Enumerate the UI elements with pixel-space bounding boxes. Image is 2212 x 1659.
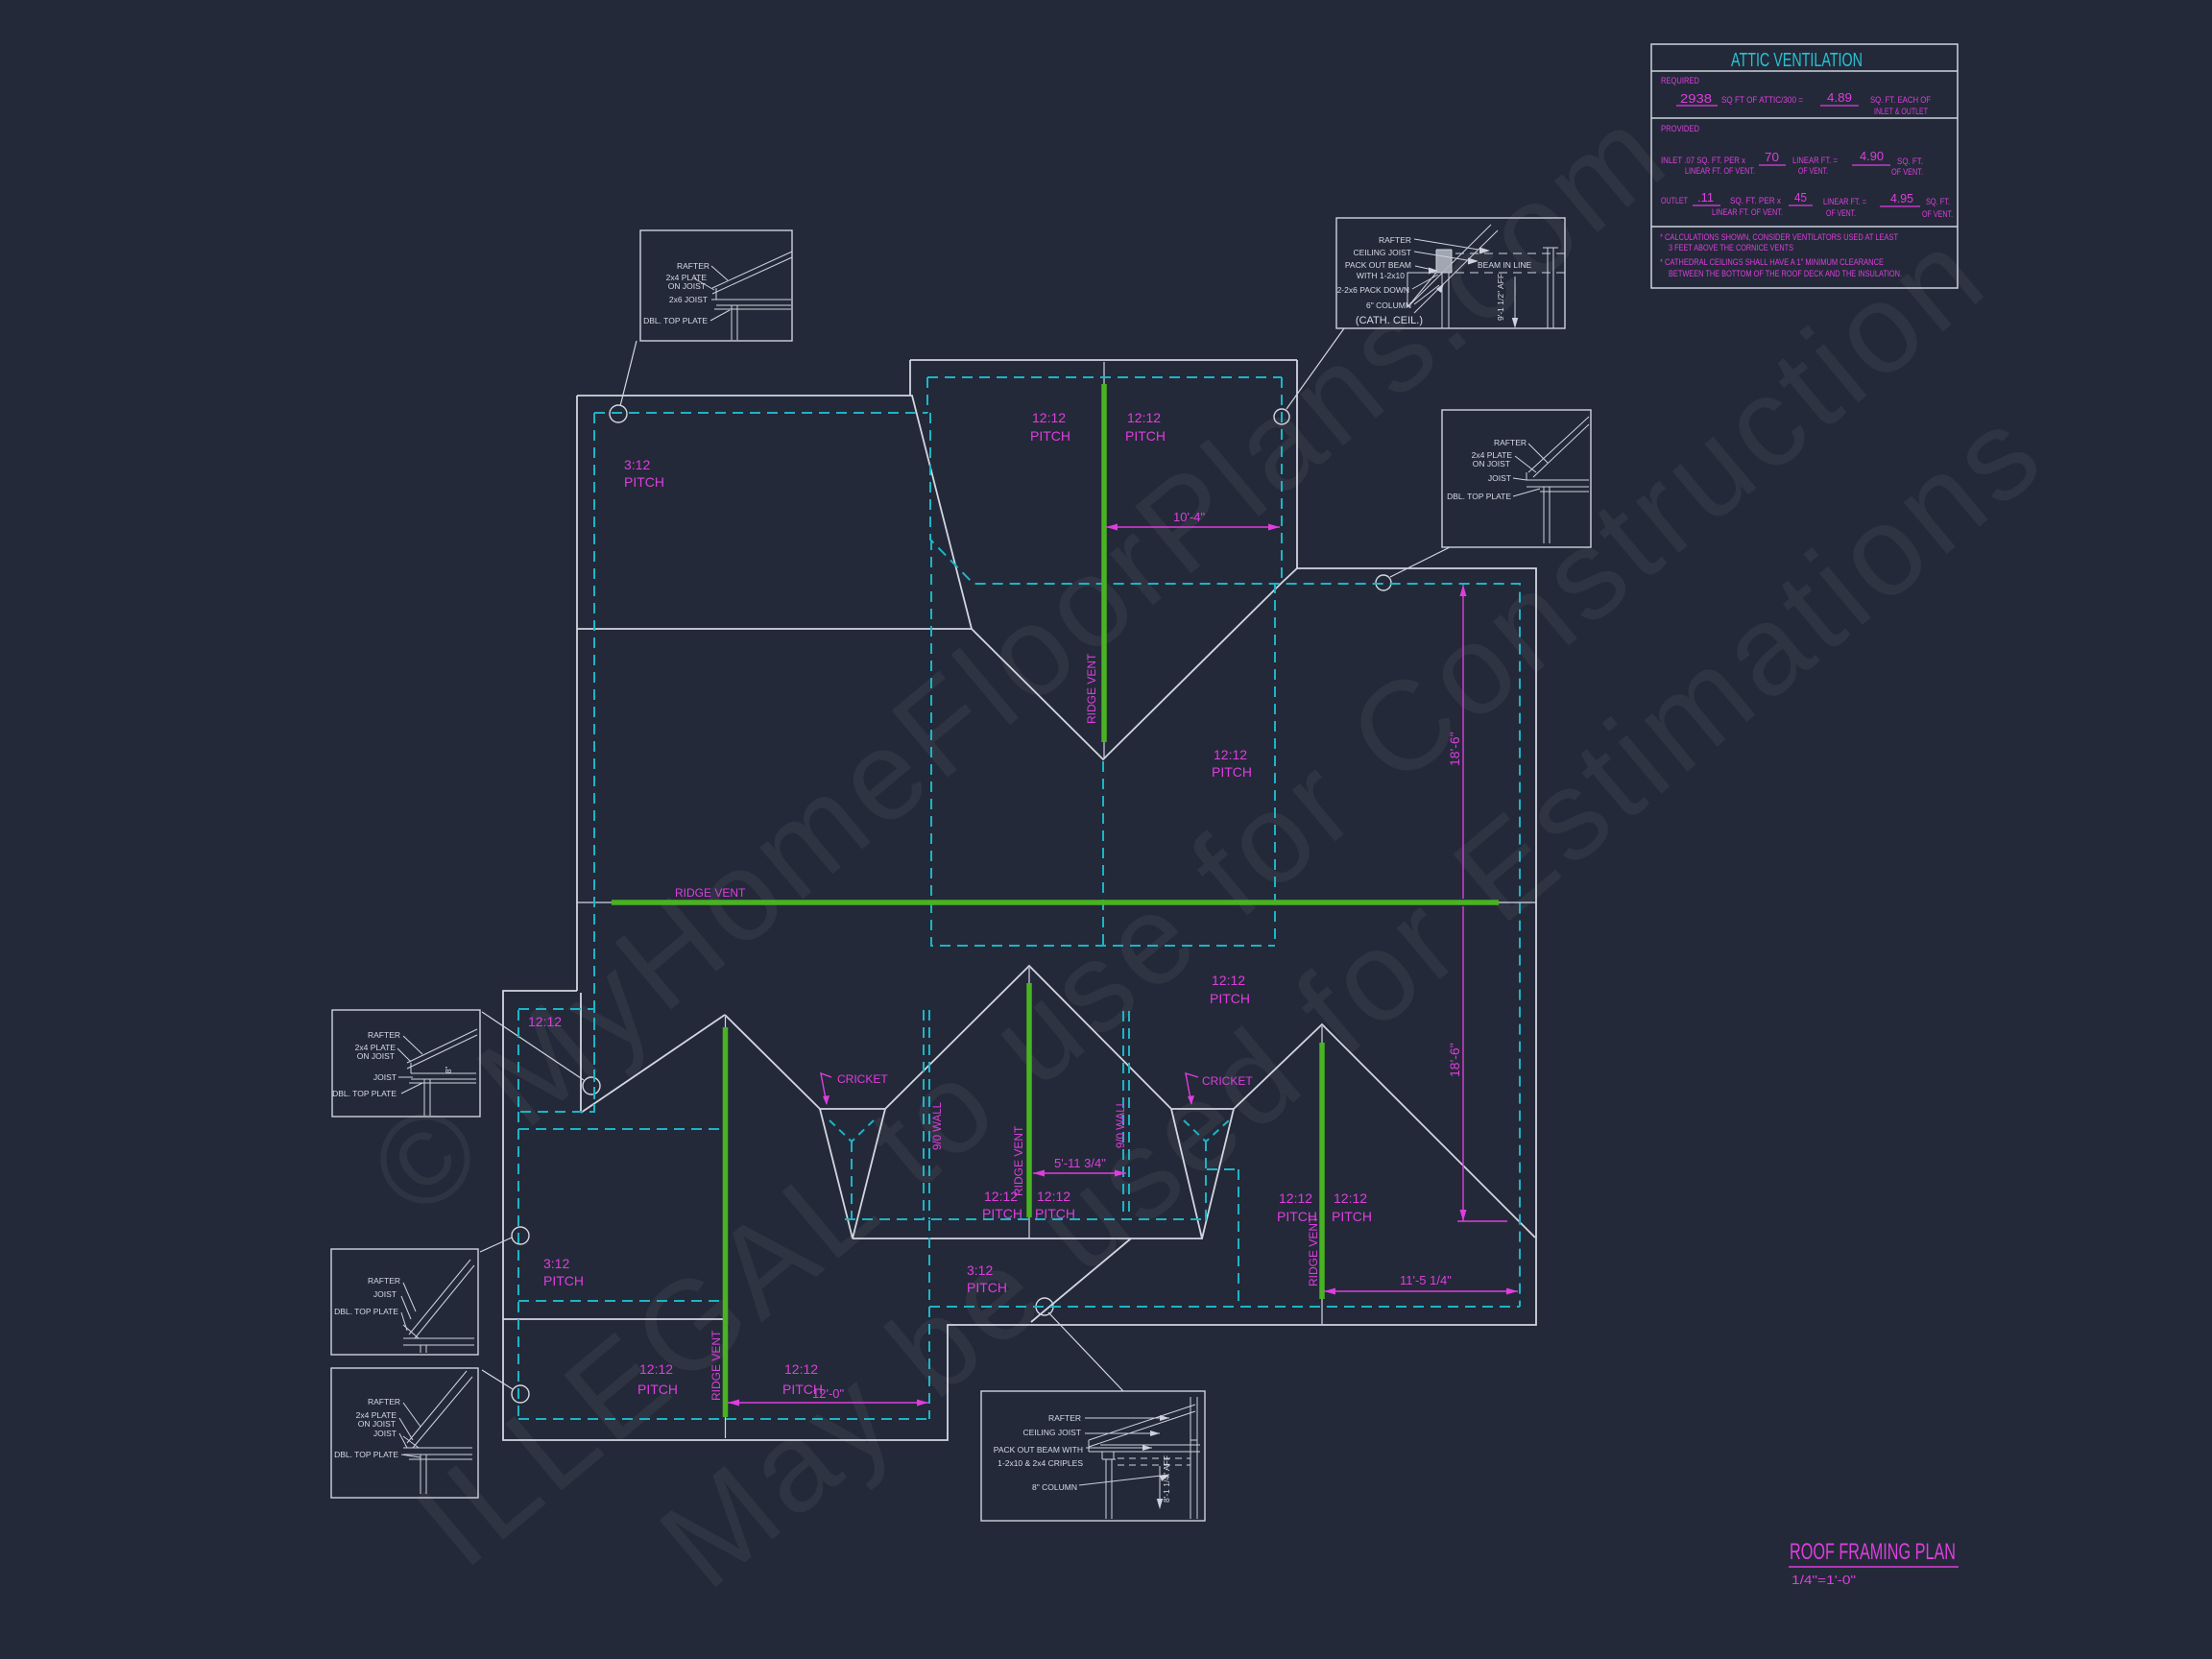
svg-text:(CATH. CEIL.): (CATH. CEIL.) [1356, 315, 1423, 326]
svg-text:PITCH: PITCH [1125, 428, 1166, 444]
svg-text:PITCH: PITCH [1030, 428, 1070, 444]
svg-text:12:12: 12:12 [1334, 1190, 1367, 1206]
svg-text:6" COLUMN: 6" COLUMN [1366, 301, 1411, 310]
svg-text:RAFTER: RAFTER [368, 1397, 400, 1407]
svg-text:12:12: 12:12 [784, 1361, 818, 1377]
svg-text:* CATHEDRAL CEILINGS SHALL HAV: * CATHEDRAL CEILINGS SHALL HAVE A 1" MIN… [1660, 257, 1884, 268]
svg-text:8'-1 1/4" AFF: 8'-1 1/4" AFF [1162, 1455, 1171, 1503]
svg-text:2-2x6 PACK DOWN: 2-2x6 PACK DOWN [1337, 285, 1409, 295]
svg-text:12'-0": 12'-0" [812, 1386, 845, 1401]
svg-text:ON JOIST: ON JOIST [668, 281, 706, 291]
svg-text:11'-5 1/4": 11'-5 1/4" [1400, 1273, 1452, 1287]
svg-text:8" COLUMN: 8" COLUMN [1032, 1482, 1077, 1492]
svg-text:3:12: 3:12 [543, 1256, 569, 1271]
svg-text:LINEAR FT. OF VENT.: LINEAR FT. OF VENT. [1712, 207, 1783, 218]
svg-text:10'-4": 10'-4" [1173, 510, 1206, 524]
svg-text:12:12: 12:12 [1279, 1190, 1312, 1206]
svg-text:RAFTER: RAFTER [368, 1276, 400, 1286]
svg-text:CRICKET: CRICKET [837, 1072, 888, 1086]
svg-text:INLET & OUTLET: INLET & OUTLET [1874, 107, 1928, 117]
svg-text:PITCH: PITCH [1210, 991, 1250, 1006]
svg-text:3:12: 3:12 [624, 457, 650, 472]
svg-text:OF VENT.: OF VENT. [1922, 209, 1953, 220]
svg-text:12:12: 12:12 [639, 1361, 673, 1377]
svg-text:18'-6": 18'-6" [1447, 1043, 1462, 1077]
svg-text:4.89: 4.89 [1827, 91, 1852, 105]
svg-text:BEAM IN LINE: BEAM IN LINE [1478, 260, 1532, 270]
svg-text:DBL. TOP PLATE: DBL. TOP PLATE [643, 316, 708, 325]
svg-text:RIDGE VENT: RIDGE VENT [1307, 1215, 1320, 1286]
svg-text:INLET .07 SQ. FT. PER x: INLET .07 SQ. FT. PER x [1661, 156, 1745, 166]
svg-text:RAFTER: RAFTER [677, 261, 709, 271]
svg-text:DBL. TOP PLATE: DBL. TOP PLATE [1447, 492, 1511, 501]
svg-text:PROVIDED: PROVIDED [1661, 124, 1699, 134]
svg-text:LINEAR FT. =: LINEAR FT. = [1792, 156, 1838, 166]
svg-text:3:12: 3:12 [967, 1262, 993, 1278]
svg-text:WITH 1-2x10: WITH 1-2x10 [1357, 271, 1405, 280]
svg-text:PITCH: PITCH [1212, 764, 1252, 780]
svg-text:PACK OUT BEAM WITH: PACK OUT BEAM WITH [994, 1445, 1083, 1455]
svg-text:PITCH: PITCH [1035, 1206, 1075, 1221]
svg-text:RIDGE VENT: RIDGE VENT [1085, 653, 1098, 724]
svg-text:ON JOIST: ON JOIST [357, 1051, 395, 1061]
svg-text:1/4"=1'-0": 1/4"=1'-0" [1791, 1573, 1856, 1587]
svg-text:5'-11 3/4": 5'-11 3/4" [1054, 1156, 1106, 1170]
svg-text:DBL. TOP PLATE: DBL. TOP PLATE [332, 1089, 397, 1098]
svg-text:PITCH: PITCH [624, 474, 664, 490]
svg-text:CEILING JOIST: CEILING JOIST [1023, 1428, 1081, 1437]
svg-text:RIDGE VENT: RIDGE VENT [1012, 1125, 1025, 1196]
svg-text:RAFTER: RAFTER [1379, 235, 1411, 245]
svg-text:LINEAR FT. OF VENT.: LINEAR FT. OF VENT. [1685, 166, 1755, 177]
svg-text:OUTLET: OUTLET [1661, 196, 1688, 206]
svg-text:OF VENT.: OF VENT. [1798, 166, 1828, 177]
svg-text:ROOF FRAMING PLAN: ROOF FRAMING PLAN [1790, 1539, 1956, 1565]
svg-text:3 FEET ABOVE THE CORNICE VENTS: 3 FEET ABOVE THE CORNICE VENTS [1669, 243, 1793, 253]
svg-text:18'-6": 18'-6" [1447, 732, 1462, 766]
svg-text:PITCH: PITCH [982, 1206, 1022, 1221]
svg-text:12:12: 12:12 [1037, 1189, 1070, 1204]
svg-text:RAFTER: RAFTER [1048, 1413, 1081, 1423]
svg-text:RAFTER: RAFTER [1494, 438, 1527, 447]
svg-text:1-2x10 & 2x4 CRIPLES: 1-2x10 & 2x4 CRIPLES [998, 1458, 1083, 1468]
svg-text:70: 70 [1765, 151, 1779, 164]
svg-text:SQ. FT. PER x: SQ. FT. PER x [1730, 196, 1781, 206]
svg-text:ON JOIST: ON JOIST [1473, 459, 1510, 469]
svg-text:45: 45 [1794, 191, 1807, 204]
svg-text:* CALCULATIONS SHOWN, CONSIDER: * CALCULATIONS SHOWN, CONSIDER VENTILATO… [1660, 232, 1898, 243]
svg-text:PACK OUT BEAM: PACK OUT BEAM [1345, 260, 1411, 270]
svg-text:CRICKET: CRICKET [1202, 1074, 1253, 1088]
svg-text:.11: .11 [1697, 191, 1714, 204]
svg-text:PITCH: PITCH [1332, 1209, 1372, 1224]
svg-text:JOIST: JOIST [1488, 473, 1511, 483]
svg-text:DBL. TOP PLATE: DBL. TOP PLATE [334, 1307, 398, 1316]
svg-text:ATTIC VENTILATION: ATTIC VENTILATION [1731, 50, 1863, 71]
svg-text:SQ. FT. EACH OF: SQ. FT. EACH OF [1870, 95, 1931, 106]
svg-text:SQ. FT.: SQ. FT. [1897, 156, 1923, 167]
svg-text:12:12: 12:12 [1032, 410, 1066, 425]
svg-text:JOIST: JOIST [373, 1429, 397, 1438]
svg-text:4.90: 4.90 [1860, 150, 1884, 163]
svg-text:12:12: 12:12 [528, 1014, 562, 1029]
svg-text:12:12: 12:12 [1214, 747, 1247, 762]
svg-text:OF VENT.: OF VENT. [1891, 167, 1923, 178]
svg-text:ON JOIST: ON JOIST [358, 1419, 396, 1429]
svg-text:RIDGE VENT: RIDGE VENT [675, 886, 746, 900]
svg-text:SQ FT OF ATTIC/300 =: SQ FT OF ATTIC/300 = [1721, 95, 1803, 106]
svg-text:9'-1 1/2" AFF: 9'-1 1/2" AFF [1496, 274, 1505, 321]
svg-text:PITCH: PITCH [637, 1382, 678, 1397]
svg-text:9/0 WALL: 9/0 WALL [1116, 1099, 1127, 1148]
svg-text:8": 8" [445, 1067, 453, 1073]
svg-text:JOIST: JOIST [373, 1289, 397, 1299]
svg-text:2x6 JOIST: 2x6 JOIST [669, 295, 708, 304]
svg-text:RIDGE VENT: RIDGE VENT [709, 1330, 723, 1401]
svg-text:RAFTER: RAFTER [368, 1030, 400, 1040]
svg-text:12:12: 12:12 [1212, 973, 1245, 988]
svg-text:SQ. FT.: SQ. FT. [1926, 197, 1950, 207]
svg-text:REQUIRED: REQUIRED [1661, 76, 1699, 86]
svg-text:9/0 WALL: 9/0 WALL [932, 1101, 944, 1150]
svg-text:4.95: 4.95 [1890, 192, 1913, 205]
svg-text:2938: 2938 [1680, 92, 1712, 106]
svg-text:PITCH: PITCH [967, 1280, 1007, 1295]
svg-text:LINEAR FT. =: LINEAR FT. = [1823, 197, 1866, 207]
svg-text:CEILING JOIST: CEILING JOIST [1354, 248, 1411, 257]
svg-text:JOIST: JOIST [373, 1072, 397, 1082]
svg-text:PITCH: PITCH [543, 1273, 584, 1288]
svg-text:12:12: 12:12 [1127, 410, 1161, 425]
svg-text:DBL. TOP PLATE: DBL. TOP PLATE [334, 1450, 398, 1459]
svg-text:BETWEEN THE BOTTOM OF THE ROOF: BETWEEN THE BOTTOM OF THE ROOF DECK AND … [1669, 269, 1902, 279]
svg-text:OF VENT.: OF VENT. [1826, 208, 1856, 219]
